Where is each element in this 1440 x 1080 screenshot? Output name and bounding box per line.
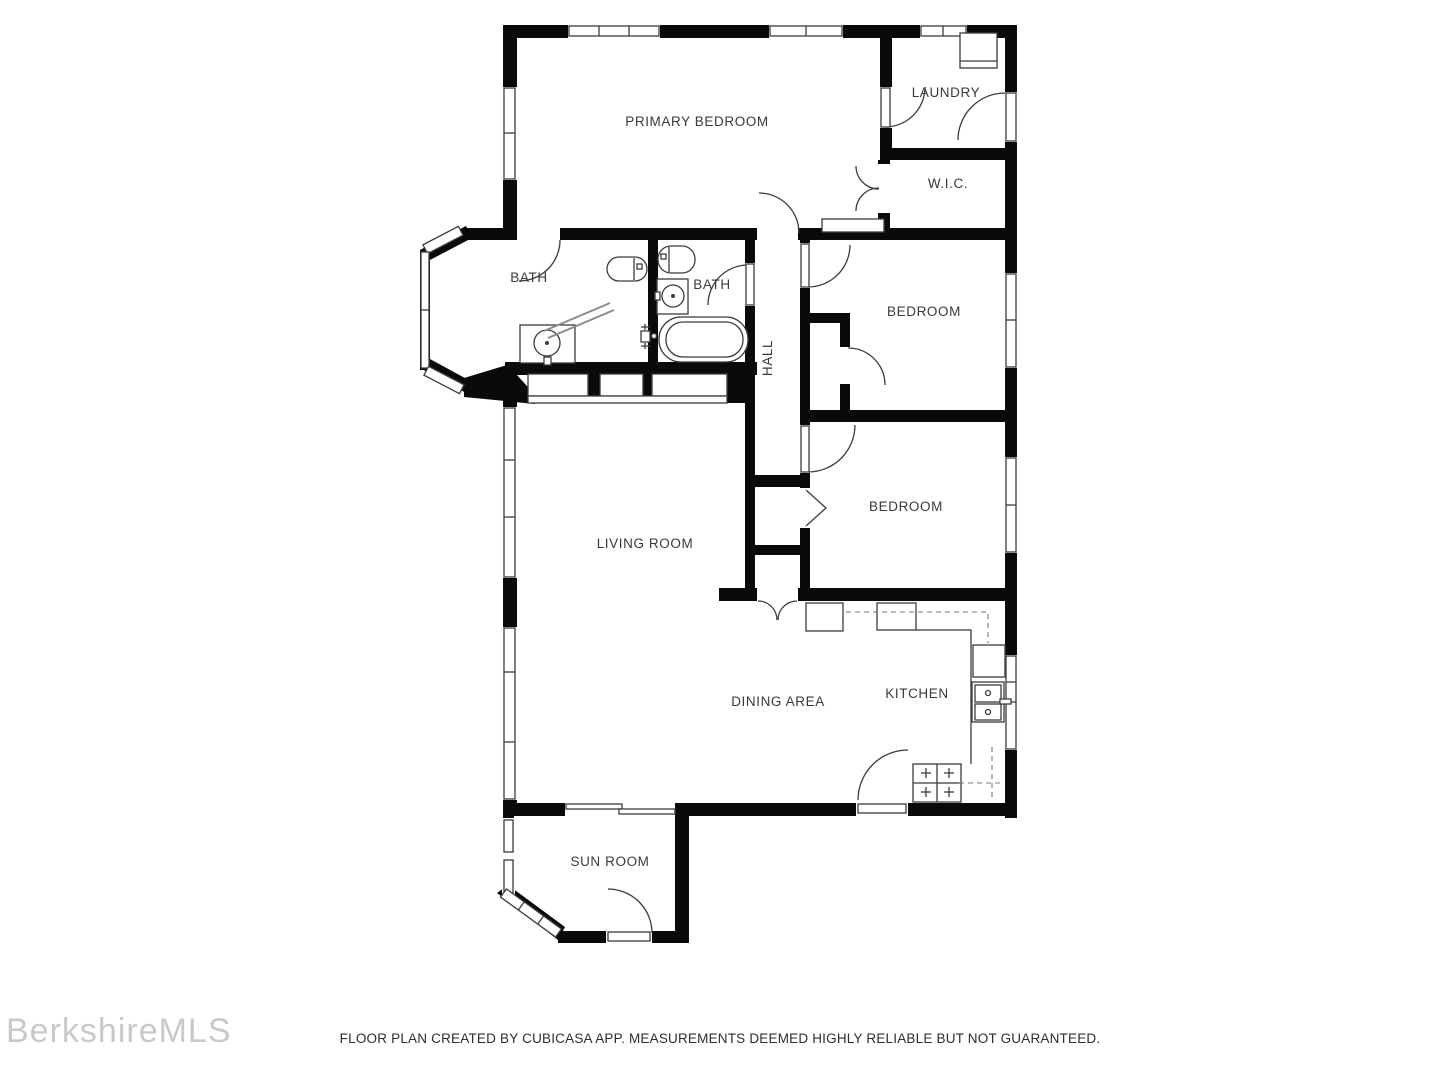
floor-plan-page: PRIMARY BEDROOM LAUNDRY W.I.C. BATH BATH… xyxy=(0,0,1440,1080)
label-bath-left: BATH xyxy=(510,270,547,285)
toilet-bath-left xyxy=(607,257,647,281)
closet-fronts xyxy=(528,374,727,403)
window-top-3 xyxy=(921,26,966,36)
stove xyxy=(913,764,961,802)
toilet-bath-right xyxy=(658,246,695,273)
door-sunroom xyxy=(608,889,652,933)
window-bedroom2-east xyxy=(1006,458,1016,552)
door-wic-right-leaf xyxy=(856,188,879,211)
window-top-2 xyxy=(770,26,842,36)
bifold-hall-closet-left xyxy=(758,601,777,620)
label-bath-right: BATH xyxy=(693,277,730,292)
primary-closet-shelf xyxy=(822,219,884,232)
door-bedroom-upper xyxy=(808,245,850,287)
label-wic: W.I.C. xyxy=(928,176,968,191)
door-dining-exterior xyxy=(858,750,908,800)
window-primary-west xyxy=(504,88,515,179)
window-sunroom-diagonal xyxy=(501,889,562,937)
window-top-1 xyxy=(569,26,659,36)
window-bedroom1-east xyxy=(1006,274,1016,367)
label-dining-area: DINING AREA xyxy=(731,694,825,709)
window-bay-left xyxy=(421,252,429,368)
bifold-hall-closet-right xyxy=(778,601,797,620)
label-kitchen: KITCHEN xyxy=(885,686,948,701)
label-bedroom-lower: BEDROOM xyxy=(869,499,943,514)
label-bedroom-upper: BEDROOM xyxy=(887,304,961,319)
door-laundry-exterior xyxy=(958,93,1005,140)
window-living-west-a xyxy=(504,408,515,577)
washer xyxy=(960,33,997,68)
floor-plan: PRIMARY BEDROOM LAUNDRY W.I.C. BATH BATH… xyxy=(0,0,1440,1080)
disclaimer-text: FLOOR PLAN CREATED BY CUBICASA APP. MEAS… xyxy=(0,1031,1440,1046)
label-primary-bedroom: PRIMARY BEDROOM xyxy=(625,114,769,129)
label-laundry: LAUNDRY xyxy=(912,85,980,100)
label-sun-room: SUN ROOM xyxy=(570,854,649,869)
bathtub xyxy=(659,317,748,362)
door-bedroom-upper-closet xyxy=(848,348,885,385)
label-living-room: LIVING ROOM xyxy=(597,536,694,551)
door-wic-left-leaf xyxy=(856,166,879,189)
sink-bath-right xyxy=(655,279,688,314)
window-living-west-b xyxy=(504,628,515,799)
door-bedroom-lower xyxy=(808,425,855,472)
label-hall: HALL xyxy=(760,340,775,376)
